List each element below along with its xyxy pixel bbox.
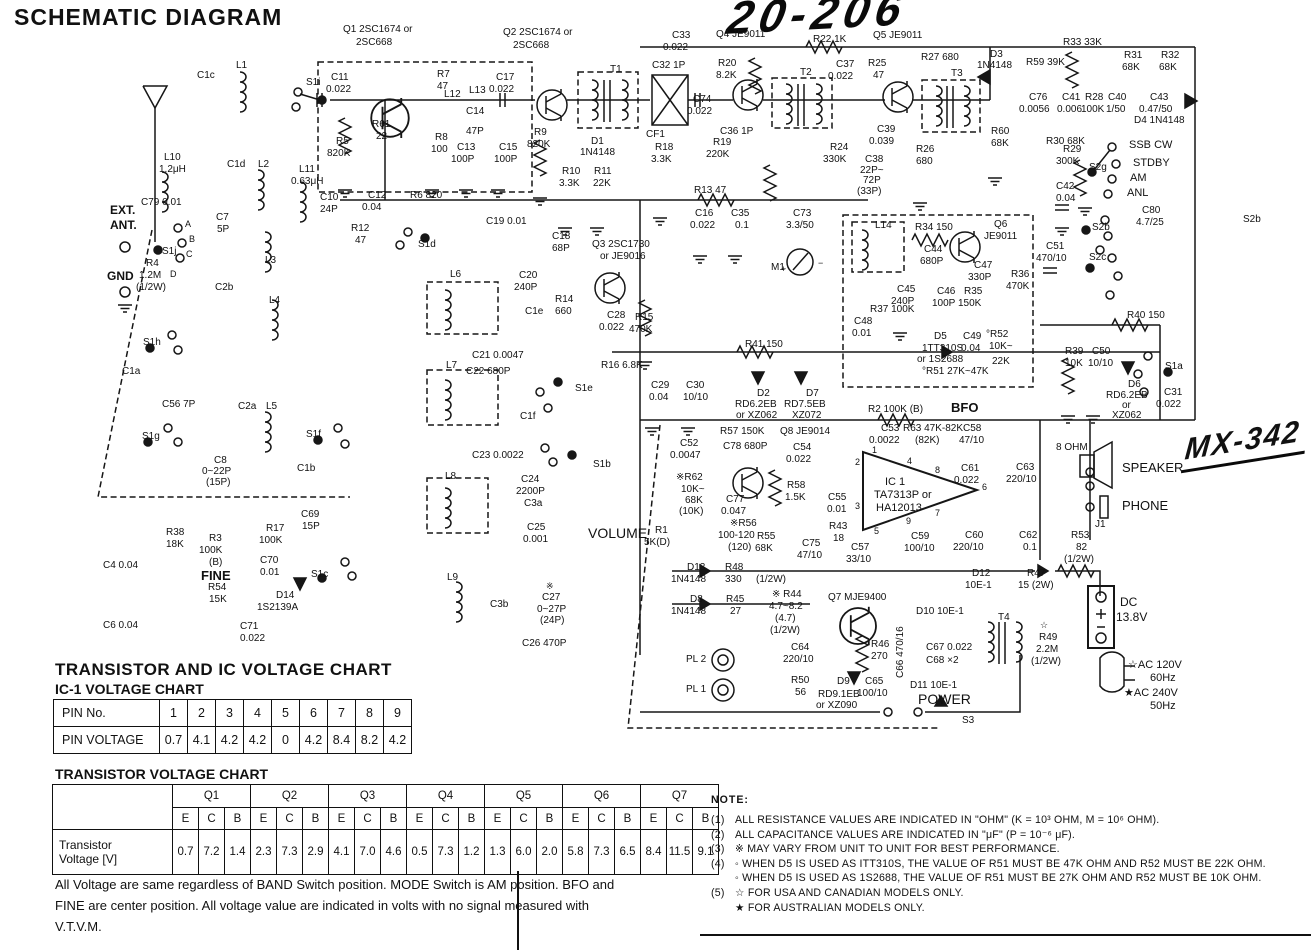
component-label: S2g	[1089, 162, 1107, 173]
table-cell: B	[459, 808, 485, 830]
component-label: 330P	[968, 272, 992, 283]
component-label: D5	[934, 331, 947, 342]
table-cell: 1.2	[459, 830, 485, 875]
component-label: C30	[686, 380, 705, 391]
component-label: R45	[726, 594, 745, 605]
component-label: C76	[1029, 92, 1048, 103]
component-label: 18K	[166, 539, 184, 550]
component-label: S1g	[142, 431, 160, 442]
component-label: ※	[546, 581, 554, 591]
component-label: 7	[935, 508, 940, 518]
component-label: 330K	[823, 154, 847, 165]
component-label: 10K~	[681, 484, 705, 495]
table-cell: Q5	[485, 785, 563, 808]
component-label: JE9011	[984, 231, 1018, 242]
component-label: C32 1P	[652, 60, 686, 71]
component-label: 330	[725, 574, 742, 585]
component-label: R61	[372, 119, 391, 130]
component-label: ※R62	[676, 472, 703, 483]
component-label: D12	[972, 568, 991, 579]
component-label: C73	[793, 208, 812, 219]
component-label: R49	[1039, 632, 1058, 643]
component-label: A	[185, 219, 191, 229]
component-label: C37	[836, 59, 855, 70]
component-label: R38	[166, 527, 185, 538]
component-label: 0.01	[852, 328, 872, 339]
ic1-chart-title: IC-1 VOLTAGE CHART	[55, 681, 204, 697]
component-label: R48	[725, 562, 744, 573]
component-label: 10K	[1065, 358, 1083, 369]
component-label: 6	[982, 482, 987, 492]
component-label: C80	[1142, 205, 1161, 216]
component-label: C74	[693, 94, 712, 105]
component-label: L9	[447, 572, 459, 583]
component-label: 13.8V	[1116, 610, 1147, 624]
component-label: 68K	[1122, 62, 1140, 73]
component-label: S1e	[575, 383, 593, 394]
component-label: 2	[855, 457, 860, 467]
component-label: 72P	[863, 175, 881, 186]
component-label: RD6.2EB	[735, 399, 777, 410]
component-label: ★AC 240V	[1124, 687, 1179, 699]
component-label: C10	[320, 192, 339, 203]
component-label: ☆AC 120V	[1128, 659, 1183, 671]
component-label: 0~22P	[202, 466, 232, 477]
component-label: 240P	[514, 282, 538, 293]
notes-title: NOTE:	[711, 794, 1301, 806]
component-label: 150K	[958, 298, 982, 309]
component-label: or XZ062	[736, 410, 778, 421]
component-label: ※R56	[730, 518, 757, 529]
component-label: RD9.1EB	[818, 689, 860, 700]
component-label: 8	[935, 465, 940, 475]
component-label: 1/50	[1106, 104, 1126, 115]
component-label: 820K	[327, 148, 351, 159]
table-cell: 3	[216, 700, 244, 727]
component-label: 0.047	[721, 506, 746, 517]
table-cell: 2.3	[251, 830, 277, 875]
table-cell: 6	[300, 700, 328, 727]
component-label: BFO	[951, 400, 978, 415]
component-label: XZ072	[792, 410, 822, 421]
component-label: PL 2	[686, 654, 707, 665]
component-label: CF1	[646, 129, 665, 140]
component-label: 1.5K	[785, 492, 806, 503]
component-label: C18	[552, 231, 571, 242]
table-cell: 7.3	[277, 830, 303, 875]
table-cell: E	[173, 808, 199, 830]
component-label: L4	[269, 295, 281, 306]
component-label: C2a	[238, 401, 257, 412]
component-label: L13	[469, 85, 486, 96]
component-label: R25	[868, 58, 887, 69]
component-label: S1d	[418, 239, 436, 250]
component-label: 0.022	[240, 633, 265, 644]
component-label: R54	[208, 582, 227, 593]
table-cell: E	[485, 808, 511, 830]
component-label: 10E-1	[965, 580, 992, 591]
component-label: S1f	[306, 429, 321, 440]
table-cell: PIN No.	[54, 700, 160, 727]
component-label: Q3 2SC1730	[592, 239, 650, 250]
component-label: °R52	[986, 329, 1009, 340]
component-label: 68K	[1159, 62, 1177, 73]
component-label: Q1 2SC1674 or	[343, 24, 413, 35]
component-label: 4	[907, 456, 912, 466]
table-cell: 4.2	[300, 727, 328, 754]
component-label: R58	[787, 480, 806, 491]
component-label: C24	[521, 474, 540, 485]
table-cell: 4.6	[381, 830, 407, 875]
component-label: EXT.	[110, 203, 135, 217]
table-cell: C	[355, 808, 381, 830]
table-cell: C	[511, 808, 537, 830]
component-label: 220/10	[1006, 474, 1037, 485]
transistor-voltage-table: Q1Q2Q3Q4Q5Q6Q7ECBECBECBECBECBECBECBTrans…	[52, 784, 719, 875]
component-label: 56	[795, 687, 807, 698]
component-label: C67 0.022	[926, 642, 973, 653]
component-label: R24	[830, 142, 849, 153]
component-label: R57 150K	[720, 426, 765, 437]
component-label: ※ R44	[772, 589, 802, 600]
component-label: C68 ×2	[926, 655, 959, 666]
component-label: C60	[965, 530, 984, 541]
table-cell: 6.5	[615, 830, 641, 875]
component-label: R55	[757, 531, 776, 542]
notes-panel: NOTE: (1)ALL RESISTANCE VALUES ARE INDIC…	[711, 794, 1301, 916]
component-label: (82K)	[915, 435, 939, 446]
table-cell: TransistorVoltage [V]	[53, 830, 173, 875]
component-label: C47	[974, 260, 993, 271]
component-label: R13 47	[694, 185, 727, 196]
component-label: 680P	[920, 256, 944, 267]
footnote-line: FINE are center position. All voltage va…	[55, 896, 614, 917]
table-cell: E	[563, 808, 589, 830]
component-label: 2.2M	[1036, 644, 1058, 655]
component-label: T4	[998, 612, 1010, 623]
table-cell: 7	[328, 700, 356, 727]
component-label: R18	[655, 142, 674, 153]
component-label: R14	[555, 294, 574, 305]
component-label: 100K	[199, 545, 223, 556]
component-label: (1/2W)	[1064, 554, 1094, 565]
component-label: R2 100K (B)	[868, 404, 923, 415]
component-label: C70	[260, 555, 279, 566]
component-label: R29	[1063, 144, 1082, 155]
table-cell: 7.3	[433, 830, 459, 875]
component-label: 47	[355, 235, 367, 246]
component-label: 100	[431, 144, 448, 155]
component-label: 82	[1076, 542, 1088, 553]
component-label: C7	[216, 212, 229, 223]
component-label: D3	[990, 49, 1003, 60]
component-label: 100P	[451, 154, 475, 165]
component-label: 24P	[320, 204, 338, 215]
component-label: 1N4148	[671, 606, 706, 617]
component-label: STDBY	[1133, 157, 1170, 169]
table-cell: 7.2	[199, 830, 225, 875]
component-label: C29	[651, 380, 670, 391]
component-label: 0.01	[260, 567, 280, 578]
component-label: R9	[534, 127, 547, 138]
component-label: R46	[871, 639, 890, 650]
component-label: C58	[963, 423, 982, 434]
component-label: S1h	[143, 337, 161, 348]
component-label: ANL	[1127, 187, 1148, 199]
component-label: L14	[875, 220, 892, 231]
component-label: C69	[301, 509, 320, 520]
component-label: R12	[351, 223, 370, 234]
voltage-chart-section-title: TRANSISTOR AND IC VOLTAGE CHART	[55, 660, 392, 680]
component-label: R41 150	[745, 339, 783, 350]
component-label: L11	[299, 164, 315, 175]
component-label: IC 1	[885, 476, 905, 488]
component-label: 2200P	[516, 486, 545, 497]
component-label: R27 680	[921, 52, 959, 63]
component-label: or XZ090	[816, 700, 858, 711]
component-label: D4 1N4148	[1134, 115, 1185, 126]
component-label: 1N4148	[671, 574, 706, 585]
component-label: 0.04	[961, 343, 981, 354]
component-label: (15P)	[206, 477, 230, 488]
component-label: R16 6.8K	[601, 360, 643, 371]
component-label: C46	[937, 286, 956, 297]
table-cell: 4	[244, 700, 272, 727]
component-label: 27	[730, 606, 742, 617]
table-cell: Q7	[641, 785, 719, 808]
component-label: or JE9016	[600, 251, 646, 262]
component-label: 8.2K	[716, 70, 737, 81]
table-cell: 8	[356, 700, 384, 727]
component-label: 0~27P	[537, 604, 567, 615]
table-cell: 11.5	[667, 830, 693, 875]
component-label: S2b	[1243, 214, 1261, 225]
table-cell: C	[667, 808, 693, 830]
component-label: 60Hz	[1150, 672, 1176, 684]
component-label: 8 OHM	[1056, 442, 1088, 453]
component-label: (1/2W)	[136, 282, 166, 293]
transistor-chart-title: TRANSISTOR VOLTAGE CHART	[55, 766, 268, 782]
component-label: R22 1K	[813, 34, 847, 45]
component-label: C23 0.0022	[472, 450, 524, 461]
table-cell: B	[537, 808, 563, 830]
component-label: 3.3K	[559, 178, 580, 189]
component-label: S2c	[1089, 252, 1106, 263]
note-item: ◦ WHEN D5 IS USED AS 1S2688, THE VALUE O…	[711, 872, 1301, 884]
component-label: GND	[107, 269, 134, 283]
component-label: ANT.	[110, 218, 137, 232]
table-cell: B	[225, 808, 251, 830]
table-cell: 7.3	[589, 830, 615, 875]
component-label: 0.63μH	[291, 176, 323, 187]
component-label: D1	[591, 136, 604, 147]
component-label: 0.47/50	[1139, 104, 1173, 115]
component-label: C8	[214, 455, 227, 466]
component-label: C4 0.04	[103, 560, 138, 571]
component-label: S1j	[162, 246, 176, 257]
component-label: SSB CW	[1129, 139, 1173, 151]
component-label: 22K	[593, 178, 611, 189]
component-label: R35	[964, 286, 983, 297]
component-label: 220/10	[953, 542, 984, 553]
component-label: 0.022	[1156, 399, 1181, 410]
table-cell: 8.4	[641, 830, 667, 875]
component-label: RD7.5EB	[784, 399, 826, 410]
component-label: C3b	[490, 599, 509, 610]
component-label: 50Hz	[1150, 700, 1176, 712]
component-label: R10	[562, 166, 581, 177]
component-label: R5	[336, 136, 349, 147]
table-cell: 0.7	[173, 830, 199, 875]
component-label: C31	[1164, 387, 1183, 398]
component-label: R32	[1161, 50, 1180, 61]
component-label: °R51 27K~47K	[922, 366, 989, 377]
component-label: C52	[680, 438, 699, 449]
component-label: C51	[1046, 241, 1065, 252]
component-label: R60	[991, 126, 1010, 137]
component-label: C36 1P	[720, 126, 754, 137]
component-label: 2SC668	[513, 40, 550, 51]
component-label: C1c	[197, 70, 215, 81]
component-label: R36	[1011, 269, 1030, 280]
component-label: C64	[791, 642, 810, 653]
component-label: 220/10	[783, 654, 814, 665]
table-cell: 4.2	[244, 727, 272, 754]
note-item: (5)☆ FOR USA AND CANADIAN MODELS ONLY.	[711, 887, 1301, 899]
component-label: 3.3/50	[786, 220, 814, 231]
component-label: R17	[266, 523, 285, 534]
note-item: (2)ALL CAPACITANCE VALUES ARE INDICATED …	[711, 829, 1301, 841]
component-label: 0.022	[663, 42, 688, 53]
table-cell: Q6	[563, 785, 641, 808]
component-label: C79 0.01	[141, 197, 182, 208]
component-label: 1TT310S	[922, 343, 963, 354]
component-label: 470K	[1006, 281, 1030, 292]
component-label: R7	[437, 69, 450, 80]
component-label: Q2 2SC1674 or	[503, 27, 573, 38]
component-label: C1d	[227, 159, 245, 170]
component-label: L12	[444, 89, 461, 100]
table-cell: 1.3	[485, 830, 511, 875]
component-label: 2SC668	[356, 37, 393, 48]
component-label: C66 470/16	[895, 626, 906, 678]
component-label: C48	[854, 316, 873, 327]
table-cell: Q2	[251, 785, 329, 808]
component-label: 68K	[685, 495, 703, 506]
table-cell: 7.0	[355, 830, 381, 875]
component-label: (1/2W)	[770, 625, 800, 636]
component-label: C78 680P	[723, 441, 768, 452]
table-cell: 1.4	[225, 830, 251, 875]
table-cell: 1	[160, 700, 188, 727]
component-label: 0.022	[599, 322, 624, 333]
table-cell: 5.8	[563, 830, 589, 875]
component-label: 680	[916, 156, 933, 167]
component-label: D10 10E-1	[916, 606, 964, 617]
table-cell: C	[277, 808, 303, 830]
component-label: 15K	[209, 594, 227, 605]
table-cell: E	[329, 808, 355, 830]
component-label: 10/10	[1088, 358, 1113, 369]
table-cell: 9	[384, 700, 412, 727]
component-label: D	[170, 269, 177, 279]
component-label: 0.1	[735, 220, 749, 231]
table-cell: E	[251, 808, 277, 830]
component-label: C1b	[297, 463, 316, 474]
table-cell: 2	[188, 700, 216, 727]
component-label: 660	[555, 306, 572, 317]
component-label: J1	[1095, 519, 1106, 530]
component-label: (33P)	[857, 186, 881, 197]
component-label: 15P	[302, 521, 320, 532]
component-label: 0.0047	[670, 450, 701, 461]
component-label: R1	[655, 525, 668, 536]
component-label: C44	[924, 244, 943, 255]
component-label: C12	[368, 190, 387, 201]
component-label: +	[781, 264, 786, 274]
table-cell: 0	[272, 727, 300, 754]
component-label: C54	[793, 442, 812, 453]
component-label: 47P	[466, 126, 484, 137]
component-label: R26	[916, 144, 935, 155]
component-label: C35	[731, 208, 750, 219]
note-item: (3)※ MAY VARY FROM UNIT TO UNIT FOR BEST…	[711, 843, 1301, 855]
component-label: S2b	[1092, 222, 1110, 233]
component-label: C61	[961, 463, 980, 474]
component-label: 68K	[991, 138, 1009, 149]
component-label: R20	[718, 58, 737, 69]
component-label: R31	[1124, 50, 1143, 61]
component-label: (1/2W)	[1031, 656, 1061, 667]
component-label: 47	[873, 70, 885, 81]
table-cell: E	[641, 808, 667, 830]
component-label: 0.022	[690, 220, 715, 231]
component-label: 5K(D)	[644, 537, 670, 548]
component-label: C33	[672, 30, 691, 41]
component-label: 0.022	[489, 84, 514, 95]
component-label: C65	[865, 676, 884, 687]
component-label: 0.04	[362, 202, 382, 213]
component-label: 3.3K	[651, 154, 672, 165]
component-label: 0.022	[326, 84, 351, 95]
component-label: 1S2139A	[257, 602, 298, 613]
component-label: XZ062	[1112, 410, 1142, 421]
component-label: 0.04	[649, 392, 669, 403]
component-label: D9	[837, 676, 850, 687]
component-label: (24P)	[540, 615, 564, 626]
component-label: (1/2W)	[756, 574, 786, 585]
footnote-line: All Voltage are same regardless of BAND …	[55, 875, 614, 896]
component-label: Q7 MJE9400	[828, 592, 887, 603]
component-label: 47/10	[959, 435, 984, 446]
component-label: 1.2μH	[159, 164, 186, 175]
component-label: C6 0.04	[103, 620, 138, 631]
voltage-chart-footnote: All Voltage are same regardless of BAND …	[55, 875, 614, 937]
component-label: C57	[851, 542, 870, 553]
component-label: L5	[266, 401, 278, 412]
component-label: R28	[1085, 92, 1104, 103]
component-label: 100K	[1081, 104, 1105, 115]
component-label: L8	[445, 471, 457, 482]
component-label: 15 (2W)	[1018, 580, 1054, 591]
component-label: 100-120	[718, 530, 755, 541]
table-cell: C	[199, 808, 225, 830]
component-label: C71	[240, 621, 259, 632]
component-label: 470/10	[1036, 253, 1067, 264]
component-label: C43	[1150, 92, 1169, 103]
component-label: C53	[881, 423, 900, 434]
component-label: L3	[265, 255, 277, 266]
